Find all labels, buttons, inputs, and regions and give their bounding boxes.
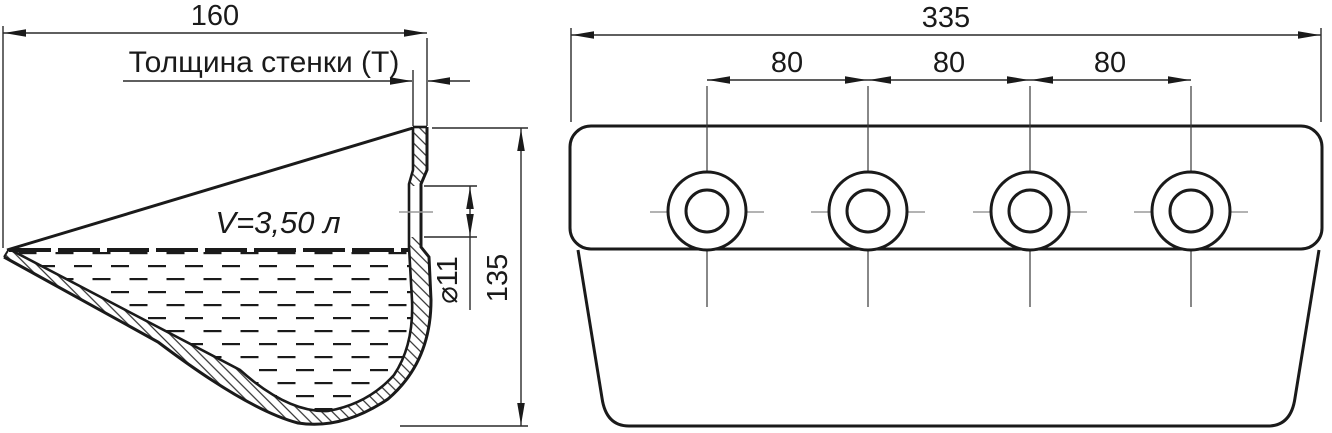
dimension-arrowhead: [466, 187, 474, 209]
dimension-arrowhead: [708, 76, 730, 84]
hole-inner-circle: [1009, 190, 1051, 232]
side-view: 160 Толщина стенки (Т) V=3,50 л ⌀11 1: [3, 0, 528, 426]
dimension-arrowhead: [404, 29, 426, 37]
hole-spacing-dim-text: 80: [1094, 47, 1126, 79]
dimension-arrowhead: [428, 77, 450, 85]
hole-inner-circle: [1170, 190, 1212, 232]
material-fill: [12, 252, 412, 411]
bucket-drawing-svg: 160 Толщина стенки (Т) V=3,50 л ⌀11 1: [0, 0, 1332, 433]
hole-spacing-dim-text: 80: [771, 47, 803, 79]
front-view: 335 80 80 80: [570, 2, 1322, 426]
width-dim-text: 160: [191, 0, 239, 32]
bucket-body-outline: [578, 250, 1319, 426]
height-dim-text: 135: [482, 254, 514, 302]
dimension-arrowhead: [4, 29, 26, 37]
dimension-arrowhead: [466, 214, 474, 236]
hole-diameter-text: ⌀11: [432, 256, 464, 304]
dimension-arrowhead: [1298, 31, 1320, 39]
volume-text: V=3,50 л: [215, 205, 340, 240]
dimension-arrowhead: [517, 403, 525, 425]
hole-inner-circle: [686, 190, 728, 232]
wall-thickness-text: Толщина стенки (Т): [129, 46, 400, 79]
front-width-dim-text: 335: [922, 2, 970, 34]
technical-drawing-canvas: 160 Толщина стенки (Т) V=3,50 л ⌀11 1: [0, 0, 1332, 433]
dimension-arrowhead: [845, 76, 867, 84]
dimension-arrowhead: [1031, 76, 1053, 84]
top-rim-line: [7, 128, 413, 250]
hole-inner-circle: [847, 190, 889, 232]
dimension-arrowhead: [869, 76, 891, 84]
dimension-arrowhead: [517, 129, 525, 151]
dimension-arrowhead: [1168, 76, 1190, 84]
dimension-arrowhead: [572, 31, 594, 39]
hole-spacing-dim-text: 80: [933, 47, 965, 79]
dimension-arrowhead: [1007, 76, 1029, 84]
